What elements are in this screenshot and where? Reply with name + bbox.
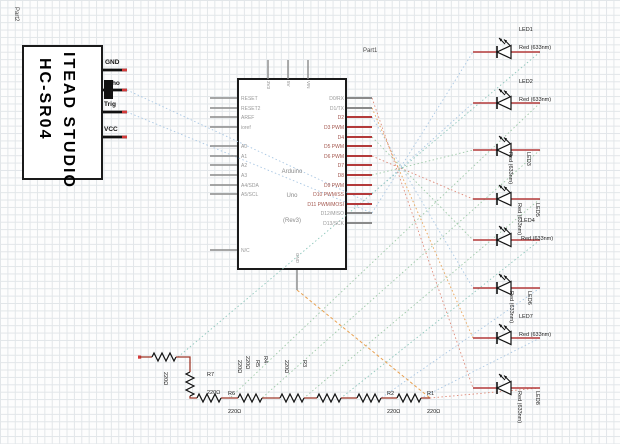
arduino-part-label: Part1 <box>363 48 377 56</box>
ratsnest-led3[interactable] <box>372 150 473 175</box>
resistor-r3-symbol[interactable] <box>317 394 341 402</box>
wire[interactable] <box>176 357 190 372</box>
r7-label: R7 220Ω <box>207 359 220 409</box>
pin-label-vin: VIN <box>305 81 311 89</box>
r2-value: 220Ω <box>387 409 400 415</box>
pin-label-d0: D0/RX <box>250 96 344 103</box>
pin-label-3v3: 3V3 <box>265 81 271 89</box>
schematic-canvas: Part2 HC-SR04 ITEAD STUDIO GND Echo Trig… <box>0 0 620 444</box>
r7-value: 220Ω <box>207 390 220 396</box>
pin-label-d7: D7 <box>250 163 344 170</box>
hcsr04-pin-label-vcc: VCC <box>104 126 118 134</box>
pin-label-d8: D8 <box>250 173 344 180</box>
ratsnest-gnd[interactable] <box>297 290 430 398</box>
r7-name: R7 <box>207 372 220 378</box>
ratsnest-r8[interactable] <box>178 52 540 357</box>
hcsr04-vendor: ITEAD STUDIO <box>57 52 78 189</box>
led2-type: Red (633nm) <box>519 97 551 103</box>
led7-type: Red (633nm) <box>519 332 551 338</box>
pin-label-gnd: GND <box>294 253 300 263</box>
pin-label-d4: D4 <box>250 135 344 142</box>
pin-label-a3: A3 <box>241 173 247 180</box>
pin-label-a0: A0 <box>241 144 247 151</box>
led1-name: LED1 <box>519 27 551 33</box>
resistor-r4-symbol[interactable] <box>280 394 304 402</box>
led5-type: Red (633nm) <box>515 203 521 235</box>
resistor-r5-symbol[interactable] <box>238 394 262 402</box>
led3-type: Red (633nm) <box>506 152 512 184</box>
resistor-r7-symbol[interactable] <box>186 372 194 396</box>
pin-label-a1: A1 <box>241 154 247 161</box>
hcsr04-part-label: Part2 <box>11 7 19 21</box>
r5-label: R5 220Ω <box>223 360 273 373</box>
hcsr04-pin-label-trig: Trig <box>104 101 116 109</box>
ratsnest-led2[interactable] <box>372 103 473 194</box>
ratsnest-led5[interactable] <box>372 137 473 240</box>
hcsr04-pin-label-gnd: GND <box>105 59 119 67</box>
led4-type: Red (633nm) <box>521 236 553 242</box>
pin-label-d2: D2 <box>250 115 344 122</box>
resistor-r8-symbol[interactable] <box>152 353 176 361</box>
pin-label-d11: D11 PWM/MOSI <box>250 202 344 209</box>
r6-value: 220Ω <box>228 409 241 415</box>
led5-label: LED5 Red (633nm) <box>503 203 553 235</box>
led1-type: Red (633nm) <box>519 45 551 51</box>
led2-label: LED2 Red (633nm) <box>519 66 551 116</box>
pin-tip <box>122 111 127 114</box>
led8-label: LED8 Red (633nm) <box>503 391 553 423</box>
pin-label-d3: D3 PWM <box>250 125 344 132</box>
pin-label-nc: N/C <box>241 248 250 255</box>
r6-label: R6 220Ω <box>228 378 241 428</box>
pin-label-d9: D9 PWM <box>250 183 344 190</box>
pin-label-d12: D12/MISO <box>250 211 344 218</box>
hcsr04-title: HC-SR04 <box>33 58 54 140</box>
pin-label-a2: A2 <box>241 163 247 170</box>
led8-name: LED8 <box>534 391 540 423</box>
hcsr04-pin-tips <box>122 69 127 139</box>
r1-value: 220Ω <box>427 409 440 415</box>
r3-value: 220Ω <box>282 360 288 373</box>
led5-name: LED5 <box>534 203 540 235</box>
pin-label-d6: D6 PWM <box>250 154 344 161</box>
r1-name: R1 <box>427 391 440 397</box>
led6-type: Red (633nm) <box>507 291 513 323</box>
hcsr04-pin-label-echo: Echo <box>104 80 120 88</box>
ratsnest-led8[interactable] <box>372 98 473 388</box>
led7-label: LED7 Red (633nm) <box>519 301 551 351</box>
led2-name: LED2 <box>519 79 551 85</box>
r3-label: R3 220Ω <box>270 360 320 373</box>
pin-label-d13: D13/SCK <box>250 221 344 228</box>
led8-type: Red (633nm) <box>515 391 521 423</box>
r5-value: 220Ω <box>235 360 241 373</box>
arduino-right-stubs <box>347 98 372 223</box>
pin-tip <box>122 89 127 92</box>
ratsnest-led6[interactable] <box>372 117 473 288</box>
r8-label: 220Ω <box>150 372 181 385</box>
ratsnest-led1[interactable] <box>372 52 473 213</box>
led1-label: LED1 Red (633nm) <box>519 14 551 64</box>
led3-label: LED3 Red (633nm) <box>494 152 544 184</box>
r6-name: R6 <box>228 391 241 397</box>
r3-name: R3 <box>301 360 307 373</box>
pin-tip <box>122 69 127 72</box>
arduino-left-stubs <box>210 98 237 250</box>
pin-label-d5: D5 PWM <box>250 144 344 151</box>
r1-label: R1 220Ω <box>427 378 440 428</box>
r2-name: R2 <box>387 391 400 397</box>
r2-label: R2 220Ω <box>387 378 400 428</box>
r5-name: R5 <box>254 360 260 373</box>
pin-tip <box>138 356 141 359</box>
pin-label-5v: 5V <box>285 81 291 87</box>
ratsnest-led4[interactable] <box>372 156 473 199</box>
r8-value: 220Ω <box>162 372 168 385</box>
pin-label-d10: D10 PWM/SS <box>250 192 344 199</box>
pin-label-d1: D1/TX <box>250 106 344 113</box>
wire[interactable] <box>190 396 197 398</box>
pin-tip <box>122 136 127 139</box>
resistor-r1-symbol[interactable] <box>397 394 421 402</box>
ratsnest-led7[interactable] <box>372 108 473 338</box>
resistor-r2-symbol[interactable] <box>357 394 381 402</box>
led3-name: LED3 <box>525 152 531 184</box>
led7-name: LED7 <box>519 314 551 320</box>
